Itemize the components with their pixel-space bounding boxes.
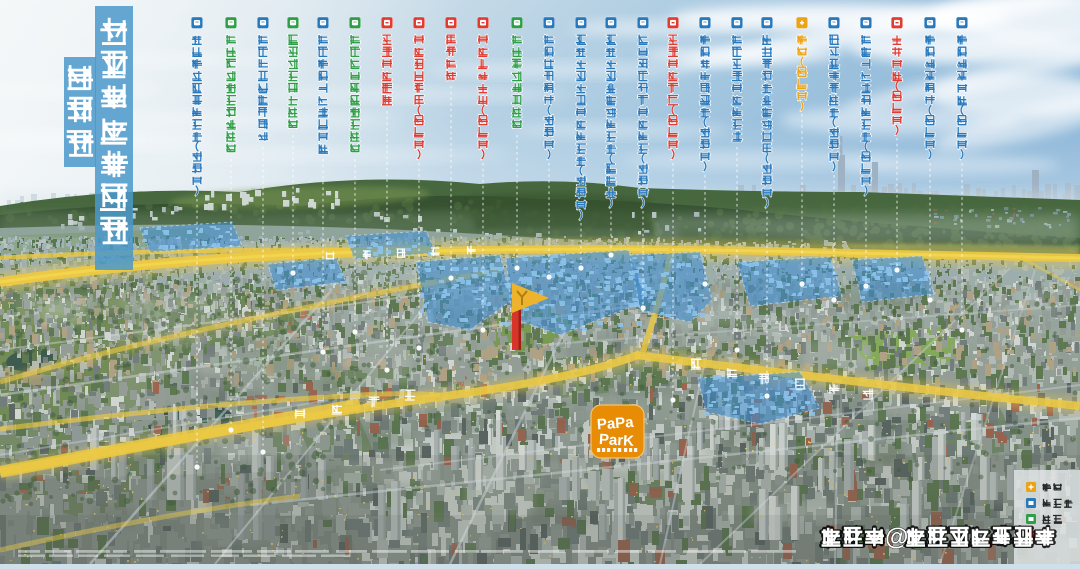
svg-text:ParK: ParK	[599, 431, 635, 450]
svg-text:@: @	[885, 524, 908, 551]
